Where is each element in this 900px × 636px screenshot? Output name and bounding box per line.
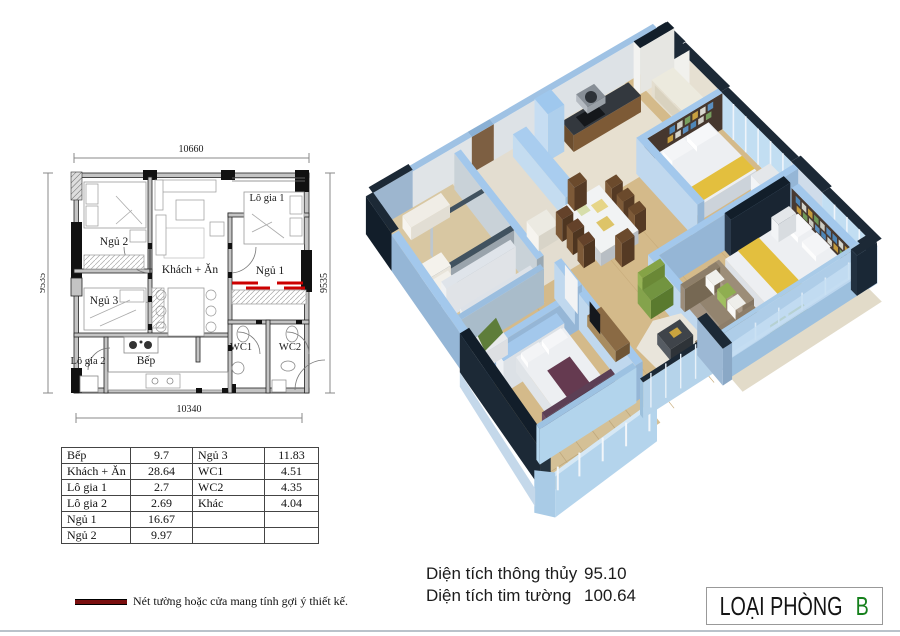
svg-text:WC1: WC1 [230,342,252,353]
svg-text:Khách + Ăn: Khách + Ăn [162,262,219,276]
svg-text:Ngủ 1: Ngủ 1 [256,265,285,277]
svg-text:Bếp: Bếp [137,354,156,367]
svg-text:Lô gia 2: Lô gia 2 [71,356,106,367]
svg-text:Ngủ 2: Ngủ 2 [100,236,129,248]
svg-text:9535: 9535 [40,273,48,293]
svg-text:Ngủ 3: Ngủ 3 [90,295,119,307]
svg-text:Lô gia 1: Lô gia 1 [250,193,285,204]
svg-text:WC2: WC2 [279,342,301,353]
svg-text:10340: 10340 [177,404,202,415]
svg-text:9535: 9535 [319,273,330,293]
svg-text:10660: 10660 [179,144,204,155]
